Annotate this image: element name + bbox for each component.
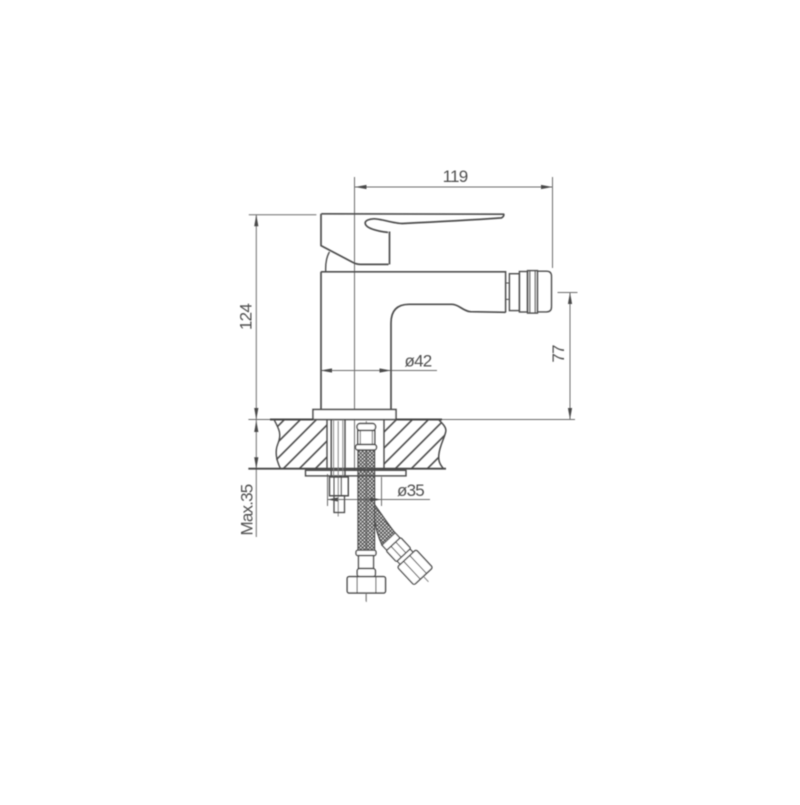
svg-text:ø35: ø35 [397,481,424,500]
svg-text:ø42: ø42 [405,352,432,371]
svg-text:Max.35: Max.35 [238,484,257,535]
svg-text:124: 124 [237,304,256,330]
svg-text:119: 119 [443,167,468,186]
svg-text:77: 77 [549,345,568,363]
